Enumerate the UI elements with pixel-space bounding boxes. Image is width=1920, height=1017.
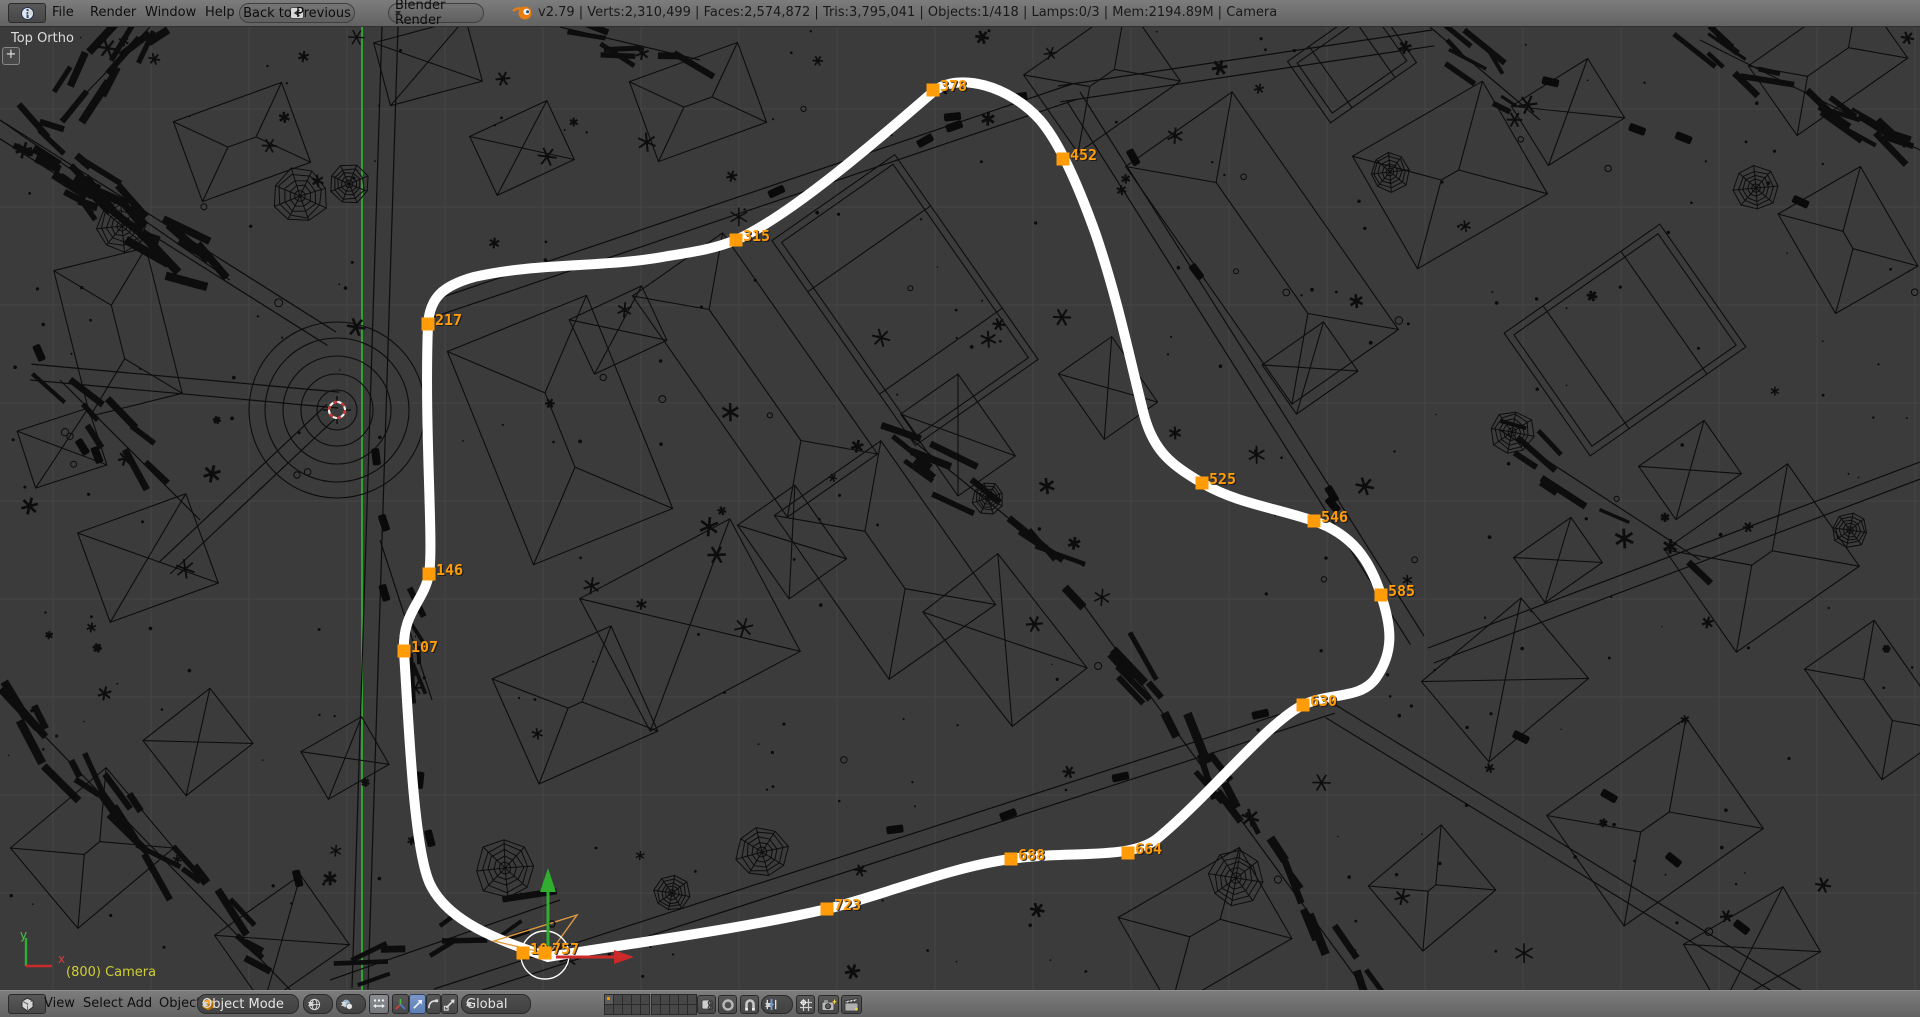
axis-y-label: y (20, 928, 27, 942)
menu-select[interactable]: Select (83, 991, 123, 1017)
menu-window[interactable]: Window (145, 0, 196, 26)
proportional-edit-icon (721, 998, 735, 1012)
viewport-3d[interactable]: 10 10 107 107 146 146 217 217 315 315 37… (0, 27, 1920, 990)
snap-target-button[interactable] (796, 995, 815, 1014)
clapperboard-icon (844, 998, 860, 1012)
blender-window: File Render Window Help Back to Previous… (0, 0, 1920, 1017)
opengl-render-anim-button[interactable] (841, 995, 862, 1014)
menu-add[interactable]: Add (127, 991, 152, 1017)
back-button-label: Back to Previous (243, 6, 351, 21)
scale-icon (443, 998, 456, 1011)
engine-label: Blender Render (395, 0, 483, 28)
proportional-edit-toggle[interactable] (718, 995, 737, 1014)
magnet-icon (743, 998, 757, 1012)
viewport-shading-select[interactable] (303, 994, 333, 1014)
back-to-previous-button[interactable]: Back to Previous (239, 3, 355, 23)
snap-toggle[interactable] (740, 995, 759, 1014)
editor-type-select[interactable] (8, 3, 46, 23)
axis-tripod-icon (394, 998, 407, 1011)
active-camera-label: (800) Camera (66, 965, 156, 980)
layer-buttons-group-2[interactable] (651, 994, 697, 1015)
scene-stats: v2.79 | Verts:2,310,499 | Faces:2,574,87… (538, 0, 1277, 26)
lock-scene-icon (700, 998, 714, 1012)
manipulate-centers-toggle[interactable] (369, 994, 389, 1014)
snap-element-select[interactable] (761, 995, 793, 1014)
view-mode-label: Top Ortho (11, 31, 74, 46)
transform-orientation-select[interactable]: Global (461, 994, 531, 1014)
pivot-point-select[interactable] (336, 994, 366, 1014)
top-header-bar: File Render Window Help Back to Previous… (0, 0, 1920, 27)
axis-x-label: x (58, 952, 65, 966)
render-engine-select[interactable]: Blender Render (388, 3, 484, 23)
menu-render[interactable]: Render (90, 0, 136, 26)
manipulator-widget-toggle[interactable] (392, 994, 409, 1014)
rotate-icon (427, 998, 440, 1011)
menu-help[interactable]: Help (205, 0, 235, 26)
expand-toolshelf-button[interactable]: + (2, 47, 20, 65)
editor-type-select[interactable] (8, 994, 46, 1014)
blender-logo-icon (512, 5, 534, 21)
bottom-header-bar: View Select Add Object Object Mode (0, 990, 1920, 1017)
menu-view[interactable]: View (44, 991, 75, 1017)
mode-label: Object Mode (202, 997, 284, 1012)
translate-manipulator-button[interactable] (409, 994, 426, 1014)
translate-icon (411, 998, 424, 1011)
layer-buttons-group-1[interactable] (604, 994, 650, 1015)
menu-object[interactable]: Object (159, 991, 201, 1017)
lock-to-scene-toggle[interactable] (697, 995, 716, 1014)
rotate-manipulator-button[interactable] (426, 994, 441, 1014)
opengl-camera-icon (821, 998, 837, 1012)
snap-target-icon (799, 998, 813, 1012)
opengl-render-button[interactable] (818, 995, 839, 1014)
orientation-label: Global (466, 997, 507, 1012)
wireframe-scene (0, 27, 1920, 990)
manipulate-centers-icon (372, 997, 386, 1011)
mode-select[interactable]: Object Mode (197, 994, 299, 1014)
menu-file[interactable]: File (52, 0, 74, 26)
scale-manipulator-button[interactable] (441, 994, 458, 1014)
active-layer-dot (607, 997, 610, 1000)
